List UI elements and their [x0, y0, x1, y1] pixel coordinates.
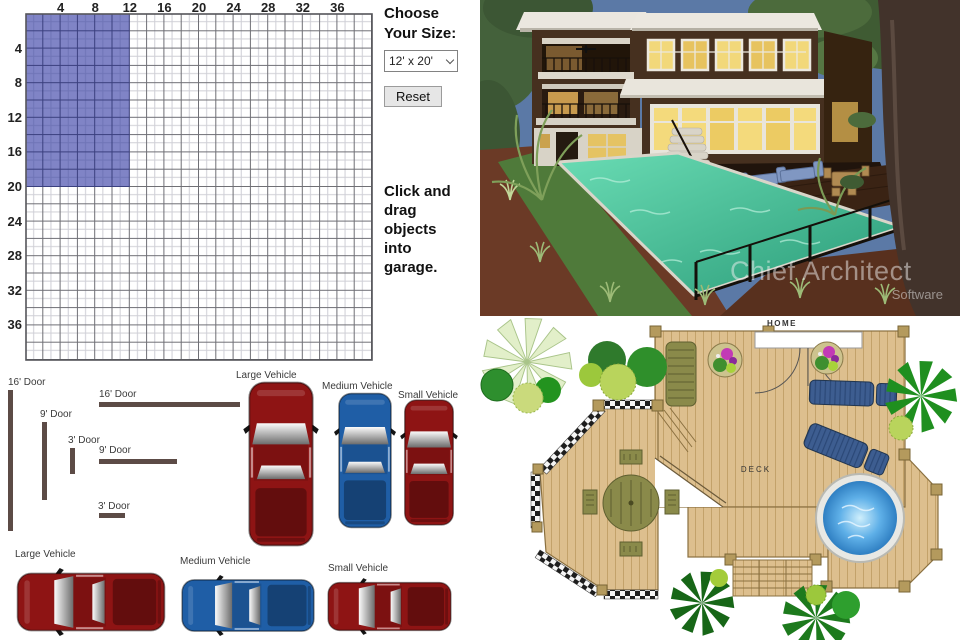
medium-vehicle-horizontal-label: Medium Vehicle — [180, 556, 251, 567]
grid-col-label: 24 — [226, 0, 240, 15]
door-3ft-horizontal[interactable] — [99, 513, 125, 518]
watermark-subtitle: Software — [892, 287, 943, 302]
lounge-chair — [809, 380, 897, 407]
flower-planter — [811, 342, 843, 374]
chevron-down-icon — [446, 55, 454, 63]
grid-row-label: 28 — [8, 248, 22, 263]
bench — [666, 342, 696, 406]
grid-col-label: 36 — [330, 0, 344, 15]
grid-col-label: 28 — [261, 0, 275, 15]
screenshot-root: 4812162024283236 4812162024283236 Choose… — [0, 0, 960, 640]
medium-vehicle-horizontal[interactable] — [176, 573, 322, 638]
size-heading: Choose Your Size: — [384, 4, 470, 43]
door-3ft-horizontal-label: 3' Door — [98, 501, 130, 512]
small-vehicle-horizontal[interactable] — [325, 575, 457, 638]
reset-button[interactable]: Reset — [384, 86, 442, 107]
home-label: HOME — [767, 319, 797, 328]
large-vehicle-horizontal-label: Large Vehicle — [15, 549, 76, 560]
grid-col-label: 8 — [92, 0, 99, 15]
medium-vehicle-vertical[interactable] — [332, 390, 398, 531]
large-vehicle-vertical[interactable] — [241, 380, 321, 548]
garage-planner-panel: 4812162024283236 4812162024283236 Choose… — [0, 0, 480, 640]
small-vehicle-horizontal-label: Small Vehicle — [328, 563, 388, 574]
door-3ft-vertical-label: 3' Door — [68, 435, 100, 446]
grid-col-label: 32 — [296, 0, 310, 15]
door-9ft-vertical[interactable] — [42, 422, 47, 500]
selected-size-highlight — [26, 14, 130, 187]
size-select[interactable]: 12' x 20' — [384, 50, 458, 72]
grid-row-label: 12 — [8, 110, 22, 125]
door-9ft-vertical-label: 9' Door — [40, 409, 72, 420]
large-vehicle-horizontal[interactable] — [8, 566, 176, 638]
deck-plan-image: HOME DECK — [480, 316, 960, 640]
door-16ft-horizontal[interactable] — [99, 402, 240, 407]
grid-col-label: 4 — [57, 0, 64, 15]
watermark-title: Chief Architect — [730, 256, 912, 286]
grid-row-label: 24 — [8, 213, 22, 228]
grid-row-label: 16 — [8, 144, 22, 159]
grid-row-label: 36 — [8, 317, 22, 332]
door-16ft-vertical-label: 16' Door — [8, 377, 46, 388]
grid-row-label: 32 — [8, 283, 22, 298]
door-9ft-horizontal[interactable] — [99, 459, 177, 464]
grid-col-label: 12 — [123, 0, 137, 15]
deck-label: DECK — [741, 465, 771, 474]
house-render-image: Chief Architect Software — [480, 0, 960, 316]
grid-row-labels: 4812162024283236 — [0, 0, 22, 640]
grid-row-label: 4 — [15, 40, 22, 55]
instruction-text: Click and drag objects into garage. — [384, 183, 458, 277]
door-16ft-horizontal-label: 16' Door — [99, 389, 137, 400]
grid-col-label: 16 — [157, 0, 171, 15]
small-vehicle-vertical[interactable] — [397, 398, 461, 527]
grid-row-label: 20 — [8, 179, 22, 194]
door-16ft-vertical[interactable] — [8, 390, 13, 531]
size-select-value: 12' x 20' — [389, 54, 433, 68]
door-9ft-horizontal-label: 9' Door — [99, 445, 131, 456]
hot-tub — [816, 474, 904, 562]
garage-grid[interactable] — [25, 13, 373, 361]
door-3ft-vertical[interactable] — [70, 448, 75, 474]
grid-row-label: 8 — [15, 75, 22, 90]
grid-col-label: 20 — [192, 0, 206, 15]
flower-planter — [708, 343, 742, 377]
